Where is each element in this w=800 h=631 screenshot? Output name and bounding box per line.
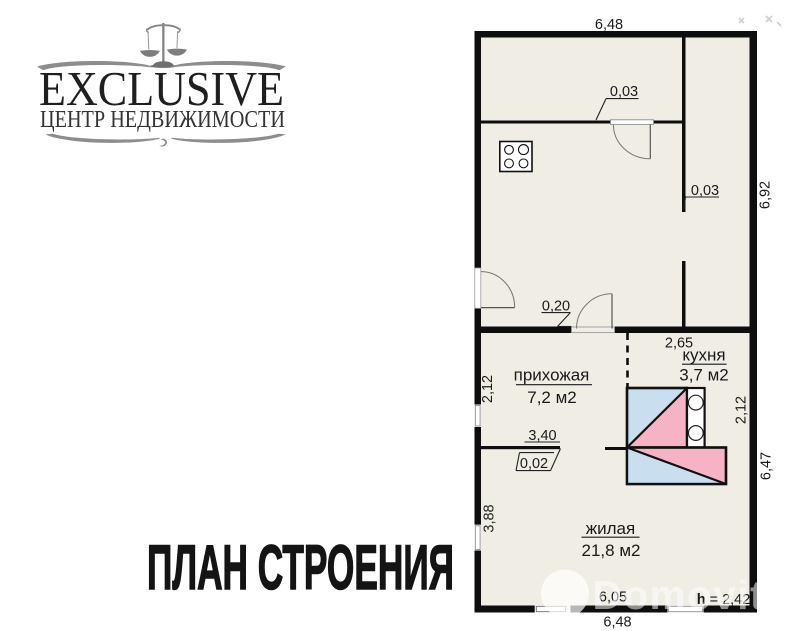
- svg-text:Domovita: Domovita: [593, 572, 790, 618]
- svg-text:0,03: 0,03: [610, 84, 638, 100]
- svg-text:6,47: 6,47: [759, 452, 775, 480]
- svg-text:21,8 м2: 21,8 м2: [582, 541, 641, 560]
- svg-text:2,12: 2,12: [480, 375, 496, 403]
- svg-text:0,02: 0,02: [520, 456, 548, 472]
- svg-text:прихожая: прихожая: [514, 365, 590, 384]
- svg-text:7,2 м2: 7,2 м2: [527, 388, 577, 407]
- svg-text:ЦЕНТР НЕДВИЖИМОСТИ: ЦЕНТР НЕДВИЖИМОСТИ: [40, 107, 285, 133]
- svg-text:3,88: 3,88: [482, 504, 498, 532]
- svg-text:3,7 м2: 3,7 м2: [679, 366, 729, 385]
- svg-text:0,20: 0,20: [542, 299, 570, 315]
- svg-text:6,48: 6,48: [595, 17, 623, 33]
- svg-text:жилая: жилая: [586, 519, 635, 538]
- svg-text:0,03: 0,03: [691, 183, 719, 199]
- svg-text:кухня: кухня: [682, 346, 725, 365]
- svg-text:3,40: 3,40: [528, 428, 556, 444]
- svg-text:6,92: 6,92: [758, 181, 774, 209]
- svg-text:ПЛАН СТРОЕНИЯ: ПЛАН СТРОЕНИЯ: [147, 533, 454, 603]
- svg-text:2,12: 2,12: [734, 396, 750, 424]
